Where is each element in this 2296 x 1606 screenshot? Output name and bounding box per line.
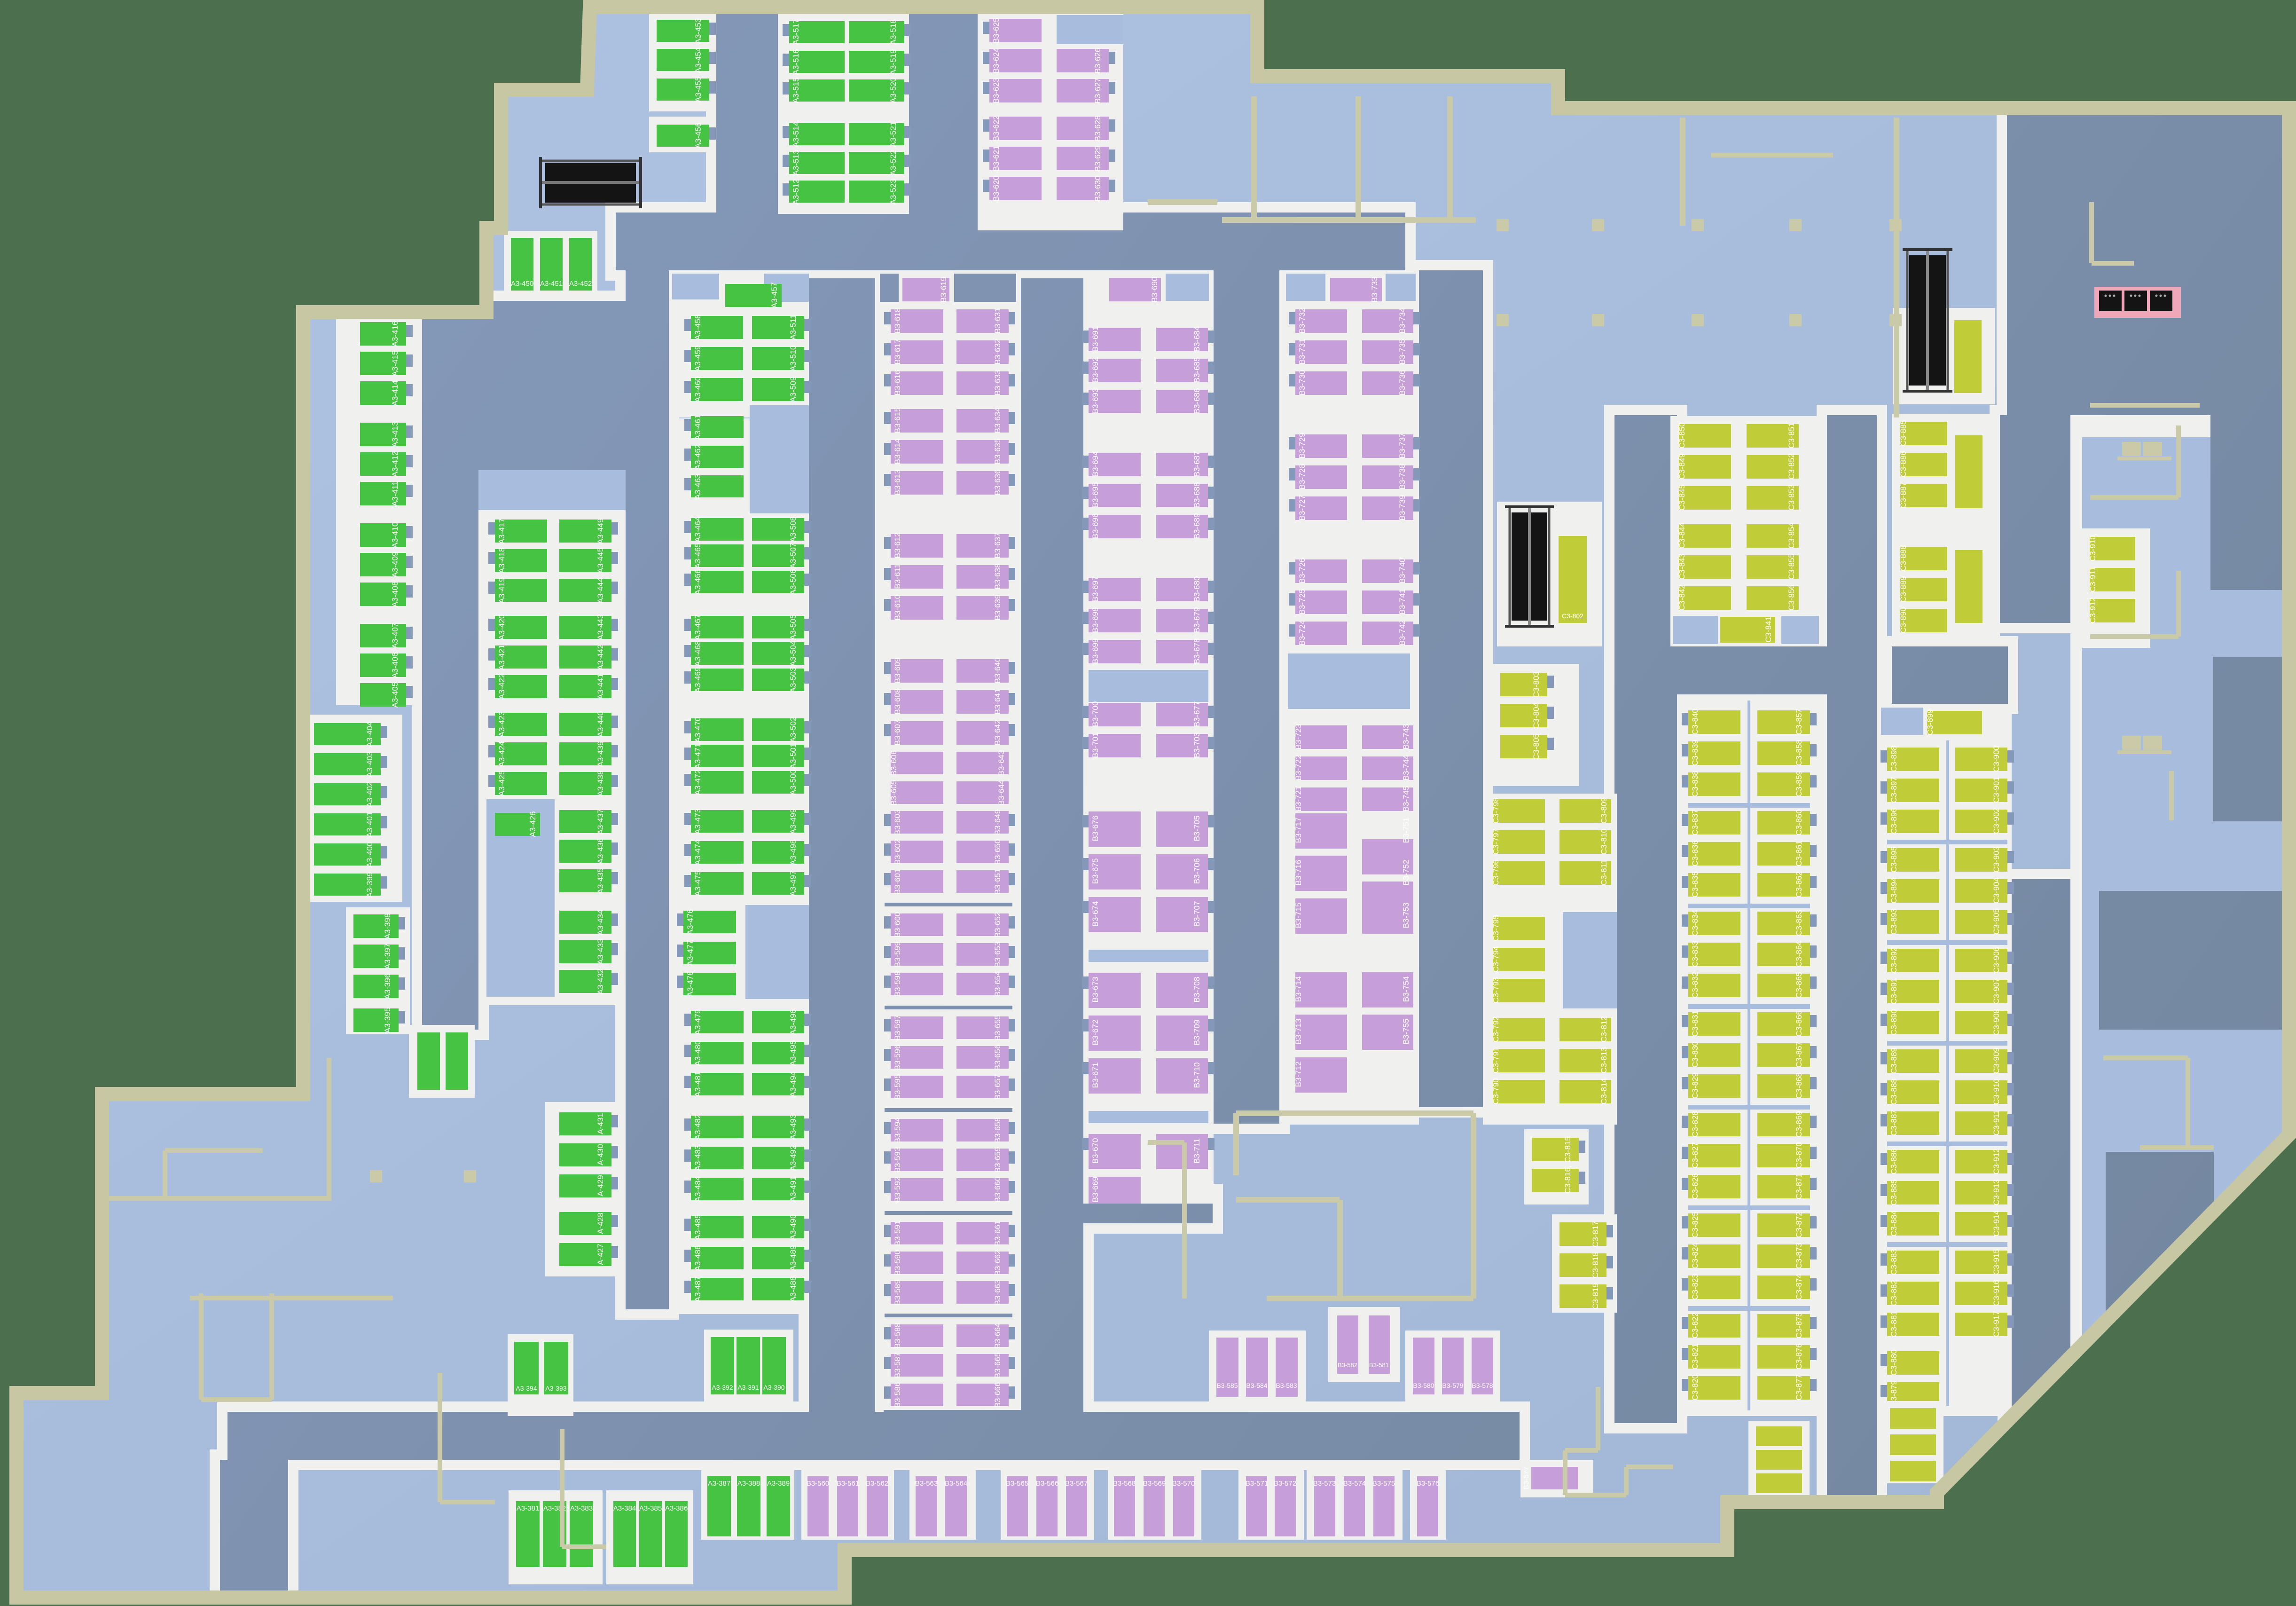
svg-text:C3-888: C3-888 <box>1889 1079 1898 1105</box>
svg-text:A3-440: A3-440 <box>596 711 605 737</box>
svg-text:B3-660: B3-660 <box>993 1177 1002 1203</box>
svg-text:C3-856: C3-856 <box>1787 584 1796 611</box>
svg-text:C3-828: C3-828 <box>1691 1111 1700 1137</box>
svg-text:B3-664: B3-664 <box>993 1323 1002 1349</box>
svg-text:B3-584: B3-584 <box>1246 1382 1267 1389</box>
svg-text:B3-583: B3-583 <box>1276 1382 1297 1389</box>
svg-text:C3-822: C3-822 <box>1691 1312 1700 1338</box>
svg-text:C3-889: C3-889 <box>1899 576 1908 602</box>
svg-text:B3-649: B3-649 <box>993 810 1002 835</box>
svg-text:B3-619: B3-619 <box>939 277 948 303</box>
svg-text:C3-825: C3-825 <box>1691 1212 1700 1238</box>
svg-text:B3-562: B3-562 <box>866 1480 888 1488</box>
svg-text:C3-903: C3-903 <box>1992 846 2001 873</box>
svg-text:A3-426: A3-426 <box>528 811 537 837</box>
svg-text:C3-853: C3-853 <box>1787 484 1796 511</box>
svg-text:B3-561: B3-561 <box>837 1480 859 1488</box>
svg-text:C3-796: C3-796 <box>1491 859 1500 886</box>
svg-text:A3-505: A3-505 <box>789 614 798 640</box>
svg-text:C3-907: C3-907 <box>1992 978 2001 1004</box>
svg-text:C3-906: C3-906 <box>1992 947 2001 973</box>
svg-text:B3-725: B3-725 <box>1298 589 1307 615</box>
svg-text:B3-736: B3-736 <box>1398 370 1407 396</box>
svg-text:B3-678: B3-678 <box>1192 638 1201 664</box>
svg-text:A3-435: A3-435 <box>596 868 605 894</box>
svg-text:B3-723: B3-723 <box>1294 724 1303 750</box>
svg-text:B3-611: B3-611 <box>893 564 902 589</box>
svg-text:A3-443: A3-443 <box>596 614 605 640</box>
svg-text:C3-887: C3-887 <box>1889 1110 1898 1136</box>
svg-text:B3-689: B3-689 <box>1192 513 1201 539</box>
svg-text:B3-674: B3-674 <box>1091 901 1100 927</box>
svg-text:C3-839: C3-839 <box>1691 740 1700 766</box>
svg-text:C3-863: C3-863 <box>1794 910 1803 936</box>
svg-text:A3-466: A3-466 <box>693 569 702 595</box>
svg-text:C3-834: C3-834 <box>1691 910 1700 936</box>
svg-text:B3-638: B3-638 <box>993 564 1002 590</box>
svg-text:B3-753: B3-753 <box>1402 903 1411 929</box>
svg-text:B3-643: B3-643 <box>997 750 1006 776</box>
svg-text:B3-706: B3-706 <box>1192 858 1201 884</box>
svg-text:B3-752: B3-752 <box>1402 860 1411 886</box>
svg-text:B3-729: B3-729 <box>1298 433 1307 459</box>
svg-text:B3-686: B3-686 <box>1192 388 1201 414</box>
svg-text:C3-859: C3-859 <box>1794 771 1803 797</box>
svg-text:B3-724: B3-724 <box>1298 620 1307 646</box>
svg-text:A3-501: A3-501 <box>789 743 798 769</box>
svg-text:B3-563: B3-563 <box>915 1480 938 1488</box>
svg-text:A3-385: A3-385 <box>639 1504 662 1512</box>
svg-text:C3-890: C3-890 <box>1889 1009 1898 1035</box>
svg-text:B3-676: B3-676 <box>1091 816 1100 842</box>
svg-text:B3-608: B3-608 <box>893 689 902 715</box>
svg-text:C3-821: C3-821 <box>1691 1343 1700 1370</box>
svg-text:A3-499: A3-499 <box>789 809 798 834</box>
svg-text:B3-602: B3-602 <box>893 839 902 865</box>
svg-text:A3-391: A3-391 <box>737 1384 759 1391</box>
svg-text:B3-716: B3-716 <box>1294 860 1303 886</box>
svg-text:B3-633: B3-633 <box>993 370 1002 396</box>
svg-text:B3-673: B3-673 <box>1091 977 1100 1003</box>
svg-text:A3-425: A3-425 <box>497 771 506 796</box>
svg-text:B3-567: B3-567 <box>1065 1480 1088 1488</box>
svg-text:C3-888: C3-888 <box>1899 545 1908 571</box>
svg-text:B3-728: B3-728 <box>1298 464 1307 490</box>
svg-text:B3-599: B3-599 <box>893 942 902 968</box>
svg-text:A3-459: A3-459 <box>693 346 702 371</box>
svg-text:B3-614: B3-614 <box>893 439 902 464</box>
svg-text:B3-564: B3-564 <box>945 1480 967 1488</box>
svg-text:B3-709: B3-709 <box>1192 1020 1201 1046</box>
svg-text:C3-852: C3-852 <box>1787 453 1796 480</box>
svg-text:A3-419: A3-419 <box>497 578 506 604</box>
svg-text:B3-656: B3-656 <box>993 1045 1002 1071</box>
svg-text:A3-418: A3-418 <box>497 548 506 574</box>
svg-text:B3-672: B3-672 <box>1091 1020 1100 1046</box>
svg-text:A3-515: A3-515 <box>791 78 800 103</box>
svg-text:C3-854: C3-854 <box>1787 522 1796 549</box>
svg-text:B3-589: B3-589 <box>893 1280 902 1306</box>
svg-text:C3-886: C3-886 <box>1889 1148 1898 1174</box>
svg-text:C3-913: C3-913 <box>1992 1179 2001 1205</box>
svg-text:B3-560: B3-560 <box>807 1480 829 1488</box>
svg-text:A3-510: A3-510 <box>789 346 798 371</box>
svg-text:C3-833: C3-833 <box>1691 941 1700 967</box>
svg-text:B3-663: B3-663 <box>993 1280 1002 1306</box>
svg-text:B3-570: B3-570 <box>1172 1480 1195 1488</box>
svg-text:A3-408: A3-408 <box>391 582 400 607</box>
svg-text:C3-845: C3-845 <box>1677 484 1686 511</box>
svg-text:A3-478: A3-478 <box>686 971 695 997</box>
svg-text:A3-454: A3-454 <box>694 47 703 73</box>
svg-text:B3-677: B3-677 <box>1192 701 1201 727</box>
svg-text:A3-474: A3-474 <box>693 840 702 866</box>
svg-text:B3-626: B3-626 <box>1093 48 1102 74</box>
svg-text:B3-615: B3-615 <box>893 408 902 433</box>
svg-text:A3-421: A3-421 <box>497 645 506 670</box>
svg-text:B3-585: B3-585 <box>1216 1382 1238 1389</box>
svg-text:C3-891: C3-891 <box>1889 978 1898 1004</box>
svg-text:B3-655: B3-655 <box>993 1015 1002 1041</box>
svg-text:B3-579: B3-579 <box>1442 1382 1463 1389</box>
svg-text:A3-488: A3-488 <box>789 1276 798 1302</box>
svg-text:B3-687: B3-687 <box>1192 451 1201 477</box>
svg-text:A3-384: A3-384 <box>613 1504 636 1512</box>
svg-text:A-430: A-430 <box>596 1144 605 1165</box>
svg-text:B3-624: B3-624 <box>992 48 1001 74</box>
svg-text:C3-911: C3-911 <box>2088 567 2097 592</box>
svg-text:A3-451: A3-451 <box>540 280 563 288</box>
svg-text:C3-909: C3-909 <box>1992 1047 2001 1074</box>
svg-text:B3-641: B3-641 <box>993 689 1002 715</box>
svg-text:A3-453: A3-453 <box>694 18 703 44</box>
svg-text:A3-458: A3-458 <box>693 315 702 340</box>
svg-text:C3-858: C3-858 <box>1794 740 1803 766</box>
svg-text:C3-831: C3-831 <box>1691 1010 1700 1037</box>
svg-text:C3-880: C3-880 <box>1889 1349 1898 1376</box>
svg-text:C3-866: C3-866 <box>1794 1010 1803 1037</box>
svg-text:C3-794: C3-794 <box>1491 946 1500 972</box>
svg-text:B3-684: B3-684 <box>1192 326 1201 352</box>
svg-text:B3-636: B3-636 <box>993 470 1002 496</box>
svg-text:B3-679: B3-679 <box>1192 607 1201 633</box>
svg-text:B3-635: B3-635 <box>993 439 1002 464</box>
svg-text:C3-884: C3-884 <box>1889 1210 1898 1236</box>
svg-text:B3-578: B3-578 <box>1472 1382 1493 1389</box>
svg-text:B3-675: B3-675 <box>1091 858 1100 884</box>
svg-text:B3-627: B3-627 <box>1093 78 1102 104</box>
svg-text:B3-565: B3-565 <box>1006 1480 1028 1488</box>
svg-text:B3-694: B3-694 <box>1091 451 1100 477</box>
svg-text:C3-795: C3-795 <box>1491 915 1500 941</box>
svg-text:A3-522: A3-522 <box>889 150 898 176</box>
svg-text:C3-900: C3-900 <box>1992 746 2001 772</box>
svg-text:C3-850: C3-850 <box>1677 422 1686 449</box>
svg-text:C3-889: C3-889 <box>1889 1047 1898 1074</box>
svg-text:B3-621: B3-621 <box>992 146 1001 172</box>
svg-text:A3-494: A3-494 <box>789 1071 798 1097</box>
svg-text:B3-692: B3-692 <box>1091 357 1100 383</box>
svg-text:C3-849: C3-849 <box>1677 453 1686 480</box>
svg-text:A3-390: A3-390 <box>763 1384 784 1391</box>
svg-text:B3-754: B3-754 <box>1402 976 1411 1002</box>
svg-text:B3-591: B3-591 <box>893 1220 902 1246</box>
svg-text:A3-481: A3-481 <box>693 1071 702 1097</box>
svg-text:A3-436: A3-436 <box>596 838 605 864</box>
svg-text:A-428: A-428 <box>596 1212 605 1234</box>
svg-text:B3-669: B3-669 <box>1091 1177 1100 1203</box>
svg-text:A3-414: A3-414 <box>391 380 400 406</box>
svg-text:C3-826: C3-826 <box>1691 1173 1700 1199</box>
svg-text:A3-422: A3-422 <box>497 674 506 700</box>
svg-text:B3-577: B3-577 <box>1522 1467 1530 1489</box>
svg-text:B3-629: B3-629 <box>1093 146 1102 172</box>
svg-text:C3-838: C3-838 <box>1691 771 1700 797</box>
svg-text:A3-519: A3-519 <box>889 49 898 75</box>
svg-text:C3-805: C3-805 <box>1532 733 1541 760</box>
svg-text:C3-871: C3-871 <box>1794 1173 1803 1199</box>
svg-text:A3-389: A3-389 <box>767 1480 790 1488</box>
svg-text:B3-690: B3-690 <box>1150 277 1159 303</box>
svg-text:C3-814: C3-814 <box>1599 1078 1608 1104</box>
svg-text:B3-618: B3-618 <box>893 308 902 334</box>
svg-text:A3-461: A3-461 <box>693 415 702 441</box>
svg-text:B3-726: B3-726 <box>1298 558 1307 584</box>
svg-text:A3-476: A3-476 <box>686 909 695 935</box>
svg-text:C3-836: C3-836 <box>1691 840 1700 866</box>
svg-text:B3-642: B3-642 <box>993 720 1002 746</box>
svg-text:C3-842: C3-842 <box>1677 584 1686 611</box>
svg-text:B3-592: B3-592 <box>893 1177 902 1203</box>
svg-text:A3-483: A3-483 <box>693 1145 702 1171</box>
svg-text:C3-914: C3-914 <box>1992 1210 2001 1236</box>
svg-text:A3-396: A3-396 <box>383 974 392 1000</box>
svg-text:B3-693: B3-693 <box>1091 388 1100 414</box>
svg-text:C3-798: C3-798 <box>1491 797 1500 824</box>
svg-text:A3-420: A3-420 <box>497 614 506 640</box>
svg-text:A3-463: A3-463 <box>693 474 702 500</box>
svg-text:A3-493: A3-493 <box>789 1114 798 1140</box>
svg-text:A3-387: A3-387 <box>708 1480 730 1488</box>
svg-text:A3-486: A3-486 <box>693 1245 702 1271</box>
svg-text:A3-381: A3-381 <box>517 1504 539 1512</box>
svg-text:A3-489: A3-489 <box>789 1245 798 1271</box>
svg-text:A3-506: A3-506 <box>789 569 798 595</box>
svg-text:A3-495: A3-495 <box>789 1040 798 1066</box>
svg-text:B3-708: B3-708 <box>1192 977 1201 1003</box>
svg-text:B3-707: B3-707 <box>1192 901 1201 927</box>
svg-text:A3-415: A3-415 <box>391 351 400 377</box>
svg-text:C3-804: C3-804 <box>1532 702 1541 729</box>
svg-text:B3-659: B3-659 <box>993 1147 1002 1173</box>
svg-text:A3-460: A3-460 <box>693 377 702 402</box>
svg-text:B3-588: B3-588 <box>893 1323 902 1349</box>
svg-text:C3-868: C3-868 <box>1794 1072 1803 1099</box>
svg-text:B3-743: B3-743 <box>1402 724 1411 750</box>
svg-text:C3-829: C3-829 <box>1691 1072 1700 1099</box>
svg-text:B3-612: B3-612 <box>893 533 902 559</box>
svg-text:B3-703: B3-703 <box>1192 732 1201 758</box>
svg-text:A3-424: A3-424 <box>497 741 506 767</box>
svg-text:A3-394: A3-394 <box>516 1385 537 1392</box>
svg-text:B3-607: B3-607 <box>893 720 902 746</box>
svg-text:A3-456: A3-456 <box>694 123 703 149</box>
svg-text:A-431: A-431 <box>596 1113 605 1134</box>
svg-text:C3-810: C3-810 <box>1599 828 1608 855</box>
svg-text:C3-892: C3-892 <box>1889 947 1898 973</box>
svg-text:B3-594: B3-594 <box>893 1118 902 1143</box>
svg-text:B3-742: B3-742 <box>1398 620 1407 646</box>
svg-text:B3-661: B3-661 <box>993 1220 1002 1246</box>
svg-text:A3-467: A3-467 <box>693 614 702 640</box>
svg-text:A3-518: A3-518 <box>889 19 898 45</box>
svg-text:B3-582: B3-582 <box>1338 1362 1357 1369</box>
svg-text:B3-696: B3-696 <box>1091 513 1100 539</box>
svg-text:A3-512: A3-512 <box>791 179 800 205</box>
svg-text:A3-410: A3-410 <box>391 522 400 548</box>
svg-text:B3-581: B3-581 <box>1369 1362 1389 1369</box>
svg-text:B3-630: B3-630 <box>1093 176 1102 202</box>
svg-text:B3-665: B3-665 <box>993 1353 1002 1378</box>
svg-text:A3-469: A3-469 <box>693 667 702 693</box>
svg-text:B3-617: B3-617 <box>893 339 902 365</box>
svg-text:C3-905: C3-905 <box>1992 908 2001 935</box>
svg-text:A3-484: A3-484 <box>693 1176 702 1202</box>
svg-text:B3-712: B3-712 <box>1294 1062 1303 1087</box>
svg-text:C3-896: C3-896 <box>1889 808 1898 834</box>
svg-text:B3-639: B3-639 <box>993 595 1002 621</box>
svg-text:C3-820: C3-820 <box>1691 1374 1700 1401</box>
svg-text:B3-580: B3-580 <box>1413 1382 1434 1389</box>
svg-text:A3-398: A3-398 <box>383 913 392 939</box>
svg-text:B3-740: B3-740 <box>1398 558 1407 584</box>
svg-text:C3-824: C3-824 <box>1691 1243 1700 1269</box>
svg-text:C3-902: C3-902 <box>1992 808 2001 834</box>
svg-text:A3-475: A3-475 <box>693 871 702 897</box>
svg-text:B3-705: B3-705 <box>1192 816 1201 842</box>
svg-text:C3-895: C3-895 <box>1889 846 1898 873</box>
svg-text:A-427: A-427 <box>596 1244 605 1265</box>
svg-text:B3-566: B3-566 <box>1036 1480 1058 1488</box>
svg-text:C3-815: C3-815 <box>1563 1136 1572 1163</box>
svg-text:B3-637: B3-637 <box>993 533 1002 559</box>
svg-text:B3-609: B3-609 <box>893 658 902 684</box>
svg-text:B3-595: B3-595 <box>893 1074 902 1100</box>
svg-text:B3-597: B3-597 <box>893 1015 902 1041</box>
svg-text:A3-411: A3-411 <box>391 481 400 506</box>
svg-text:C3-908: C3-908 <box>1992 1009 2001 1035</box>
svg-text:C3-835: C3-835 <box>1691 871 1700 897</box>
svg-text:A3-507: A3-507 <box>789 543 798 569</box>
svg-text:B3-628: B3-628 <box>1093 116 1102 142</box>
svg-text:A3-514: A3-514 <box>791 122 800 148</box>
svg-text:A3-480: A3-480 <box>693 1040 702 1066</box>
svg-text:B3-620: B3-620 <box>992 176 1001 202</box>
svg-text:C3-893: C3-893 <box>1889 908 1898 935</box>
svg-text:B3-651: B3-651 <box>993 869 1002 895</box>
svg-text:A3-457: A3-457 <box>770 283 779 308</box>
svg-text:B3-632: B3-632 <box>993 339 1002 365</box>
svg-text:B3-733: B3-733 <box>1370 277 1379 303</box>
svg-text:A3-407: A3-407 <box>391 623 400 649</box>
svg-text:C3-817: C3-817 <box>1591 1221 1600 1247</box>
svg-text:B3-622: B3-622 <box>992 116 1001 142</box>
svg-text:C3-916: C3-916 <box>1992 1280 2001 1306</box>
svg-text:C3-890: C3-890 <box>1899 607 1908 633</box>
svg-text:C3-816: C3-816 <box>1563 1167 1572 1194</box>
svg-text:A3-423: A3-423 <box>497 711 506 737</box>
svg-text:C3-885: C3-885 <box>1889 1179 1898 1205</box>
svg-text:B3-685: B3-685 <box>1192 357 1201 383</box>
svg-text:B3-610: B3-610 <box>893 595 902 621</box>
svg-text:B3-714: B3-714 <box>1294 976 1303 1002</box>
svg-text:A3-470: A3-470 <box>693 717 702 743</box>
svg-text:A3-508: A3-508 <box>789 517 798 543</box>
svg-text:B3-653: B3-653 <box>993 942 1002 968</box>
svg-text:B3-738: B3-738 <box>1398 464 1407 490</box>
svg-text:C3-840: C3-840 <box>1691 709 1700 735</box>
svg-text:A3-383: A3-383 <box>570 1504 593 1512</box>
svg-text:B3-605: B3-605 <box>889 780 898 806</box>
svg-text:B3-576: B3-576 <box>1417 1480 1439 1488</box>
svg-text:B3-586: B3-586 <box>893 1382 902 1408</box>
svg-text:B3-587: B3-587 <box>893 1353 902 1378</box>
svg-text:A3-504: A3-504 <box>789 641 798 667</box>
svg-text:A3-386: A3-386 <box>665 1504 688 1512</box>
svg-text:A3-468: A3-468 <box>693 641 702 667</box>
svg-text:A3-509: A3-509 <box>789 377 798 402</box>
svg-text:B3-695: B3-695 <box>1091 482 1100 508</box>
svg-text:A3-441: A3-441 <box>596 674 605 700</box>
svg-text:A3-471: A3-471 <box>693 743 702 769</box>
svg-text:C3-809: C3-809 <box>1599 797 1608 824</box>
svg-text:B3-623: B3-623 <box>992 78 1001 104</box>
svg-text:C3-792: C3-792 <box>1491 1016 1500 1042</box>
svg-text:B3-671: B3-671 <box>1091 1063 1100 1088</box>
svg-text:B3-734: B3-734 <box>1398 308 1407 334</box>
svg-text:C3-877: C3-877 <box>1794 1374 1803 1401</box>
svg-text:C3-832: C3-832 <box>1691 972 1700 998</box>
svg-text:C3-894: C3-894 <box>1889 877 1898 904</box>
svg-text:A3-417: A3-417 <box>497 519 506 544</box>
svg-text:B3-613: B3-613 <box>893 470 902 496</box>
svg-text:B3-634: B3-634 <box>993 408 1002 433</box>
svg-text:A3-409: A3-409 <box>391 552 400 578</box>
svg-text:A3-497: A3-497 <box>789 871 798 897</box>
svg-text:B3-625: B3-625 <box>992 18 1001 44</box>
svg-text:C3-802: C3-802 <box>1562 612 1583 620</box>
svg-text:A3-444: A3-444 <box>596 578 605 604</box>
svg-text:A3-452: A3-452 <box>569 280 592 288</box>
svg-text:B3-666: B3-666 <box>993 1382 1002 1408</box>
svg-text:B3-697: B3-697 <box>1091 576 1100 602</box>
svg-text:B3-700: B3-700 <box>1091 701 1100 727</box>
svg-text:A3-465: A3-465 <box>693 543 702 569</box>
svg-text:B3-721: B3-721 <box>1294 786 1303 812</box>
svg-text:A3-521: A3-521 <box>889 122 898 148</box>
svg-text:C3-797: C3-797 <box>1491 828 1500 855</box>
svg-text:C3-901: C3-901 <box>1992 777 2001 803</box>
svg-text:C3-873: C3-873 <box>1794 1243 1803 1269</box>
svg-text:C3-818: C3-818 <box>1591 1252 1600 1278</box>
svg-text:B3-575: B3-575 <box>1372 1480 1395 1488</box>
svg-text:C3-791: C3-791 <box>1491 1047 1500 1073</box>
svg-text:C3-885: C3-885 <box>1899 420 1908 446</box>
svg-text:A3-490: A3-490 <box>789 1214 798 1240</box>
svg-text:A3-406: A3-406 <box>391 653 400 678</box>
svg-text:C3-855: C3-855 <box>1787 553 1796 580</box>
svg-text:B3-680: B3-680 <box>1192 576 1201 602</box>
